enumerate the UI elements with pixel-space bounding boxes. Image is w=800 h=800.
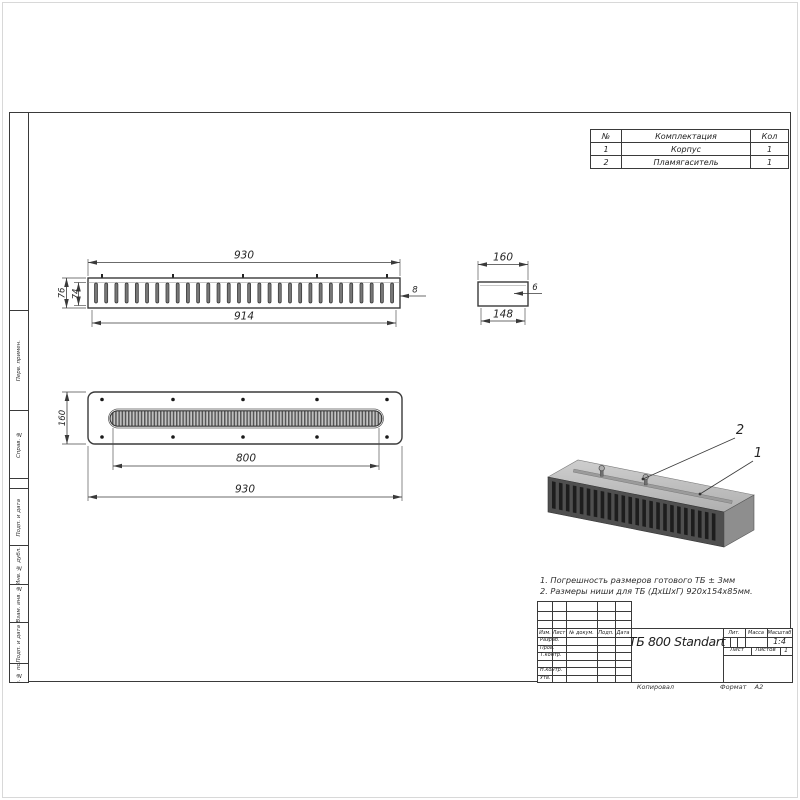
col-ndok: № докум. (566, 629, 597, 637)
note-line: 1. Погрешность размеров готового ТБ ± 3м… (540, 575, 753, 586)
row-razrab: Разраб. (538, 637, 568, 645)
iso-knob-head (599, 466, 604, 471)
callout-body: 1 (754, 446, 762, 461)
row-tkontr: Т.контр. (538, 652, 568, 660)
plan-view: 800 930 160 (58, 392, 402, 501)
format-label: Формат А2 (720, 683, 763, 691)
drawing-notes: 1. Погрешность размеров готового ТБ ± 3м… (540, 575, 753, 597)
plan-dim-width: 160 (58, 410, 68, 426)
front-dim-height-outer: 76 (58, 287, 68, 298)
sheet-label: Лист (723, 647, 751, 655)
col-izm: Изм. (538, 629, 552, 637)
callout-flame-arrester: 2 (736, 423, 744, 438)
plan-dim-slot: 800 (236, 453, 256, 465)
front-dim-wall: 8 (412, 286, 418, 296)
scale-value: 1:4 (767, 637, 792, 647)
end-dim-width-inner: 148 (493, 309, 513, 321)
format-value: А2 (755, 683, 764, 691)
sheets-value: 1 (780, 647, 792, 655)
sheets-label: Листов (751, 647, 780, 655)
front-dim-length-outer: 930 (234, 250, 254, 262)
front-dim-height-inner: 74 (72, 289, 82, 300)
end-view: 160 148 6 (478, 252, 542, 326)
front-hole-marks (101, 274, 388, 278)
front-view: 930 914 76 74 8 (58, 250, 427, 328)
note-line: 2. Размеры ниши для ТБ (ДхШхГ) 920х154х8… (540, 586, 753, 597)
plan-dim-length: 930 (235, 484, 255, 496)
mass-label: Масса (745, 629, 767, 637)
row-utv: Утв. (538, 675, 568, 683)
col-list: Лист (552, 629, 566, 637)
end-dim-width-outer: 160 (493, 252, 513, 264)
row-prov: Пров. (538, 645, 568, 653)
iso-view: 2 1 (548, 423, 762, 547)
kopiroval-label: Копировал (598, 683, 713, 691)
revision-grid (537, 601, 632, 630)
scale-label: Масштаб (767, 629, 792, 637)
front-dim-length-inner: 914 (234, 311, 254, 323)
col-podp: Подп. (597, 629, 615, 637)
end-dim-wall: 6 (532, 283, 538, 293)
title-block: Изм. Лист № докум. Подп. Дата Разраб. Пр… (537, 628, 793, 683)
format-word: Формат (720, 683, 746, 691)
lit-label: Лит. (723, 629, 745, 637)
row-nkontr: Н.контр. (538, 667, 568, 675)
doc-title: ТБ 800 Standart (633, 634, 721, 652)
